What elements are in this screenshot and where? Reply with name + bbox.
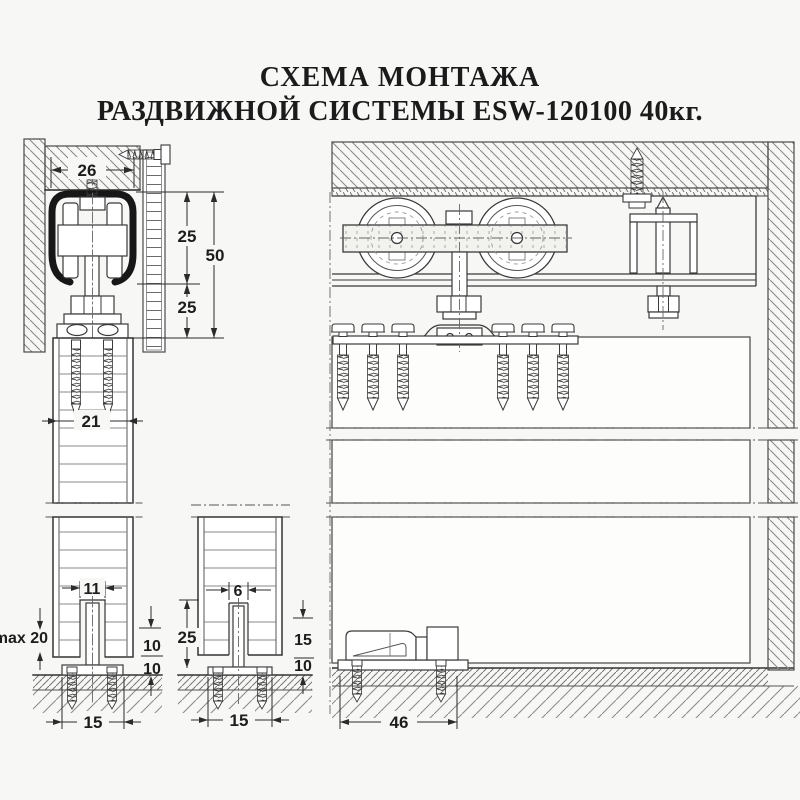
svg-text:10: 10	[143, 661, 161, 678]
door-panel-side-view	[332, 337, 750, 663]
svg-text:15: 15	[294, 632, 312, 649]
svg-text:15: 15	[84, 713, 103, 732]
svg-text:50: 50	[206, 246, 225, 265]
mounting-profile	[143, 150, 165, 352]
svg-text:46: 46	[390, 713, 409, 732]
wall-section	[24, 139, 45, 352]
dim-floor-max-gap: max 20	[0, 608, 48, 670]
track-top-flange	[332, 188, 768, 196]
floor-side-view	[332, 668, 800, 718]
door-stopper	[630, 197, 697, 318]
door-break-lines-middle	[191, 505, 290, 517]
svg-text:25: 25	[178, 628, 197, 647]
svg-text:25: 25	[178, 227, 197, 246]
svg-text:10: 10	[143, 638, 161, 655]
svg-text:21: 21	[82, 412, 101, 431]
wall-side-view	[768, 142, 794, 670]
svg-text:11: 11	[84, 581, 101, 598]
svg-text:26: 26	[78, 161, 97, 180]
floor-section-left	[33, 675, 162, 713]
diagram-canvas: 26 25 25 50	[0, 0, 800, 800]
svg-text:15: 15	[230, 711, 249, 730]
svg-text:25: 25	[178, 298, 197, 317]
svg-text:10: 10	[294, 658, 312, 675]
dim-glass-engagement: 25	[174, 600, 201, 668]
lintel-side-view	[332, 142, 768, 188]
side-elevation-view	[326, 142, 800, 718]
svg-text:max 20: max 20	[0, 630, 48, 647]
door-break-lines-left	[46, 503, 142, 517]
svg-text:6: 6	[234, 583, 243, 600]
installation-diagram-page: СХЕМА МОНТАЖА РАЗДВИЖНОЙ СИСТЕМЫ ESW-120…	[0, 0, 800, 800]
floor-section-middle	[178, 675, 312, 713]
